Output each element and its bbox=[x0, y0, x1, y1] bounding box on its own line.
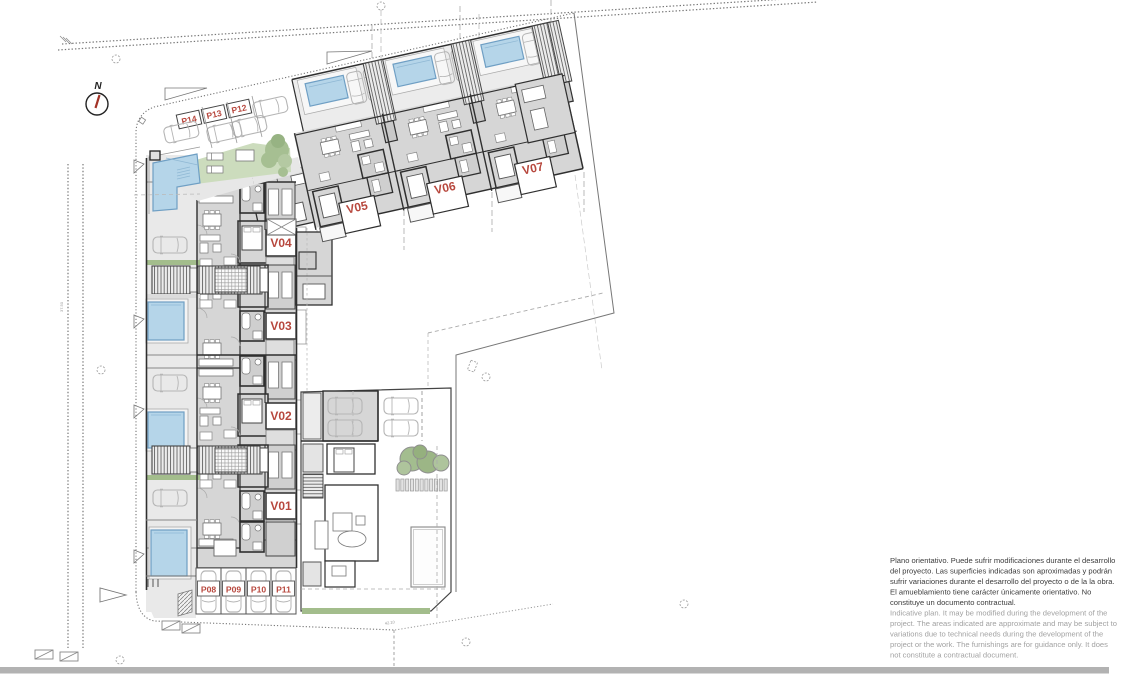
svg-text:V03: V03 bbox=[270, 319, 292, 333]
svg-text:sufrir variaciones durante el: sufrir variaciones durante el desarrollo… bbox=[890, 577, 1115, 586]
svg-text:V01: V01 bbox=[270, 499, 292, 513]
svg-text:N: N bbox=[94, 81, 102, 92]
svg-text:P09: P09 bbox=[226, 585, 242, 595]
svg-text:P10: P10 bbox=[251, 585, 267, 595]
svg-text:V02: V02 bbox=[270, 409, 292, 423]
svg-text:not constitute a contractual d: not constitute a contractual document. bbox=[890, 651, 1018, 660]
svg-text:Plano orientativo. Puede sufri: Plano orientativo. Puede sufrir modifica… bbox=[890, 556, 1115, 565]
svg-text:P11: P11 bbox=[276, 585, 291, 595]
svg-text:37.50: 37.50 bbox=[59, 301, 64, 312]
svg-text:V04: V04 bbox=[270, 236, 292, 250]
svg-text:constituye un documento contra: constituye un documento contractual. bbox=[890, 598, 1016, 607]
svg-text:variations due to technical ne: variations due to technical needs during… bbox=[890, 630, 1103, 639]
svg-text:project or the work. The furni: project or the work. The furnishings are… bbox=[890, 640, 1108, 649]
svg-text:del proyecto. Las superficies: del proyecto. Las superficies indicadas … bbox=[890, 567, 1112, 576]
svg-text:El amueblamiento tiene carácte: El amueblamiento tiene carácter únicamen… bbox=[890, 588, 1091, 597]
svg-text:project. The areas indicated a: project. The areas indicated are approxi… bbox=[890, 619, 1117, 628]
svg-text:Indicative plan. It may be mod: Indicative plan. It may be modified duri… bbox=[890, 609, 1107, 618]
svg-text:P08: P08 bbox=[201, 585, 217, 595]
